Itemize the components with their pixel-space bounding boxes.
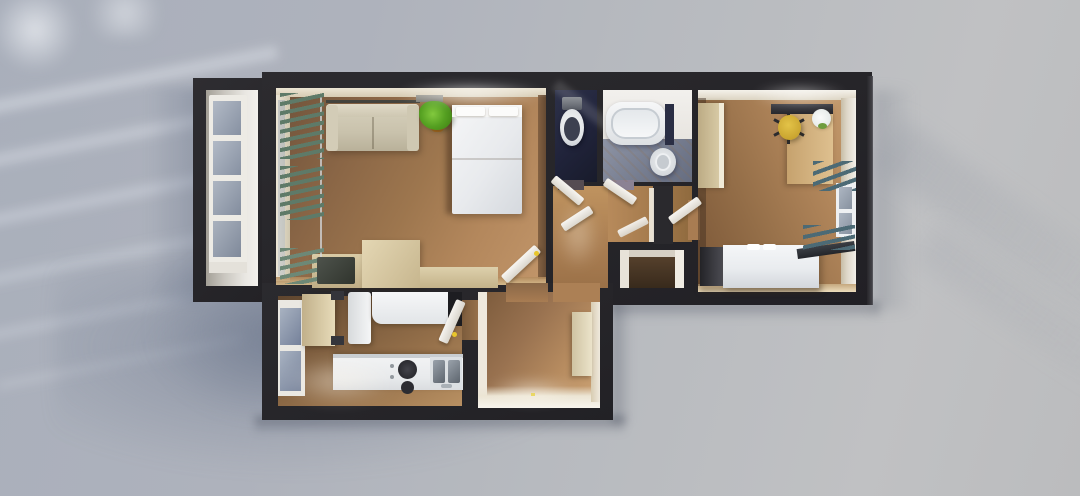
kitchen-shelf-bracket-1 xyxy=(331,291,344,300)
closet-floor xyxy=(629,257,675,288)
light-glow-top-left-2 xyxy=(80,0,170,38)
closet-left-wall-face xyxy=(620,250,629,288)
stove-burner-large xyxy=(398,360,417,379)
living-room-ceiling-glow xyxy=(396,82,546,106)
entry-right-wall-face xyxy=(591,298,600,402)
radiator-living-middle xyxy=(280,166,324,220)
bathtub-screen xyxy=(665,104,674,145)
wardrobe-front-edge xyxy=(719,103,724,188)
wc-toilet-seat xyxy=(564,117,580,141)
stove-burner-small xyxy=(401,381,414,394)
hallway-wall-stub-face xyxy=(649,188,654,242)
bathroom-toilet-seat xyxy=(655,153,671,171)
sink-basin-2 xyxy=(448,360,460,383)
hall-to-entry-opening xyxy=(553,283,600,302)
radiator-living-upper xyxy=(280,93,324,159)
double-bed-pillow-right xyxy=(489,107,518,116)
radiator-bedroom-lower xyxy=(803,225,855,250)
kitchen-doorway xyxy=(462,300,478,340)
wall-right-outer-face xyxy=(867,76,873,305)
bedroom-ceiling-glow xyxy=(752,84,848,106)
hallway-glow xyxy=(556,200,600,270)
apartment-floorplan-render xyxy=(0,0,1080,496)
bedroom-window-pane-1 xyxy=(839,187,852,209)
tv-box xyxy=(317,257,355,284)
balcony-window-pane-3 xyxy=(213,181,241,215)
kitchen-door-handle xyxy=(452,332,457,337)
double-bed-fold-line xyxy=(452,158,522,160)
bedroom-bed-pillow-2 xyxy=(763,244,776,250)
lowboard xyxy=(420,267,498,288)
office-chair-seat xyxy=(778,115,801,140)
balcony-window-pane-2 xyxy=(213,141,241,175)
sofa-armrest-left xyxy=(326,105,338,151)
balcony-window-pane-4 xyxy=(213,221,241,257)
kitchen-glow xyxy=(282,358,394,404)
balcony-window-sill xyxy=(209,262,247,273)
bedroom-bed-pillow-1 xyxy=(747,244,760,250)
living-to-entry-doorway xyxy=(506,283,548,302)
sink-faucet xyxy=(441,384,452,388)
bathroom-tile-pattern xyxy=(603,139,692,182)
closet-right-wall-face xyxy=(675,250,684,288)
bathtub-inner xyxy=(611,108,660,139)
closet-top-wall-face xyxy=(629,250,675,257)
sofa-seam xyxy=(372,117,374,149)
side-table xyxy=(362,240,420,288)
entry-cabinet xyxy=(572,312,592,376)
balcony-window-pane-1 xyxy=(213,101,241,135)
entry-floor-dot xyxy=(531,393,535,396)
sink-basin-1 xyxy=(433,360,445,383)
living-room-door-handle xyxy=(534,251,539,256)
entry-glow xyxy=(486,378,578,404)
bedroom-bed-headboard xyxy=(700,247,724,286)
sofa-armrest-right xyxy=(407,105,419,151)
desk-flower-leaf xyxy=(818,123,827,129)
kitchen-window-pane-1 xyxy=(280,308,301,345)
light-glow-top-left xyxy=(0,0,80,70)
kitchen-table xyxy=(372,292,448,324)
fridge xyxy=(348,292,371,344)
kitchen-shelf-bracket-2 xyxy=(331,336,344,345)
double-bed-pillow-left xyxy=(456,107,485,116)
shadow-right-of-entry xyxy=(612,298,632,423)
